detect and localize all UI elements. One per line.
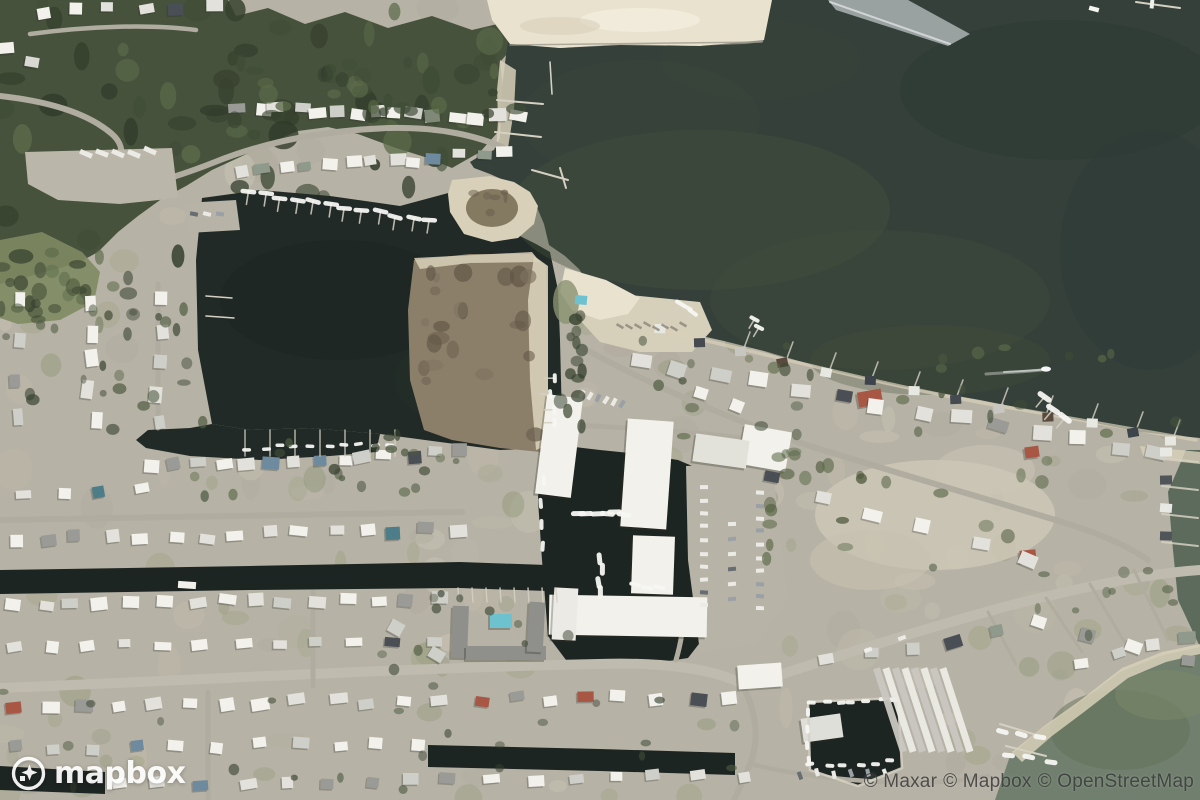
satellite-imagery (0, 0, 1200, 800)
map-canvas[interactable]: mapbox © Maxar© Mapbox© OpenStreetMap (0, 0, 1200, 800)
mapbox-logo-text: mapbox (54, 759, 185, 789)
attribution-link-maxar[interactable]: © Maxar (864, 771, 937, 792)
attribution-link-osm[interactable]: © OpenStreetMap (1038, 771, 1194, 792)
map-attribution: © Maxar© Mapbox© OpenStreetMap (858, 771, 1194, 793)
attribution-link-mapbox[interactable]: © Mapbox (943, 771, 1031, 792)
mapbox-logo[interactable]: mapbox (10, 755, 185, 792)
mapbox-logo-icon (10, 755, 47, 792)
